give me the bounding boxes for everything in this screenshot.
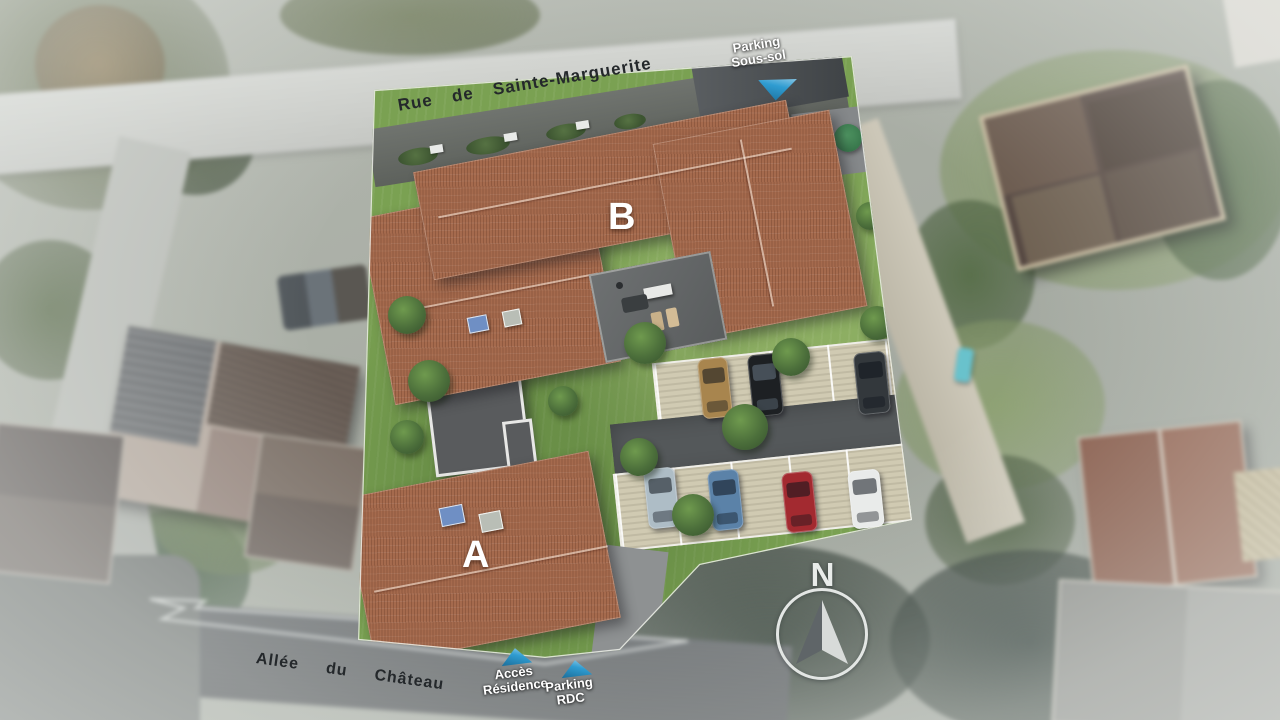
sign-acces-residence: Accès Résidence [481,662,549,697]
sign-parking-sous-sol: Parking Sous-sol [728,34,786,70]
street-label-allee-du-chateau: Allée du Château [255,650,445,694]
annotation-layer: Rue de Sainte-Marguerite Allée du Châtea… [0,0,1280,720]
compass: N [765,556,880,701]
parking-sous-sol-arrow-icon [757,73,800,102]
street-label-rue-sainte-marguerite: Rue de Sainte-Marguerite [396,54,653,116]
sign-parking-rdc: Parking RDC [545,675,596,708]
site-plan-aerial-view: Rue de Sainte-Marguerite Allée du Châtea… [0,0,1280,720]
building-b-label: B [608,196,635,239]
building-a-label: A [462,534,489,577]
compass-needle-icon [776,588,868,680]
